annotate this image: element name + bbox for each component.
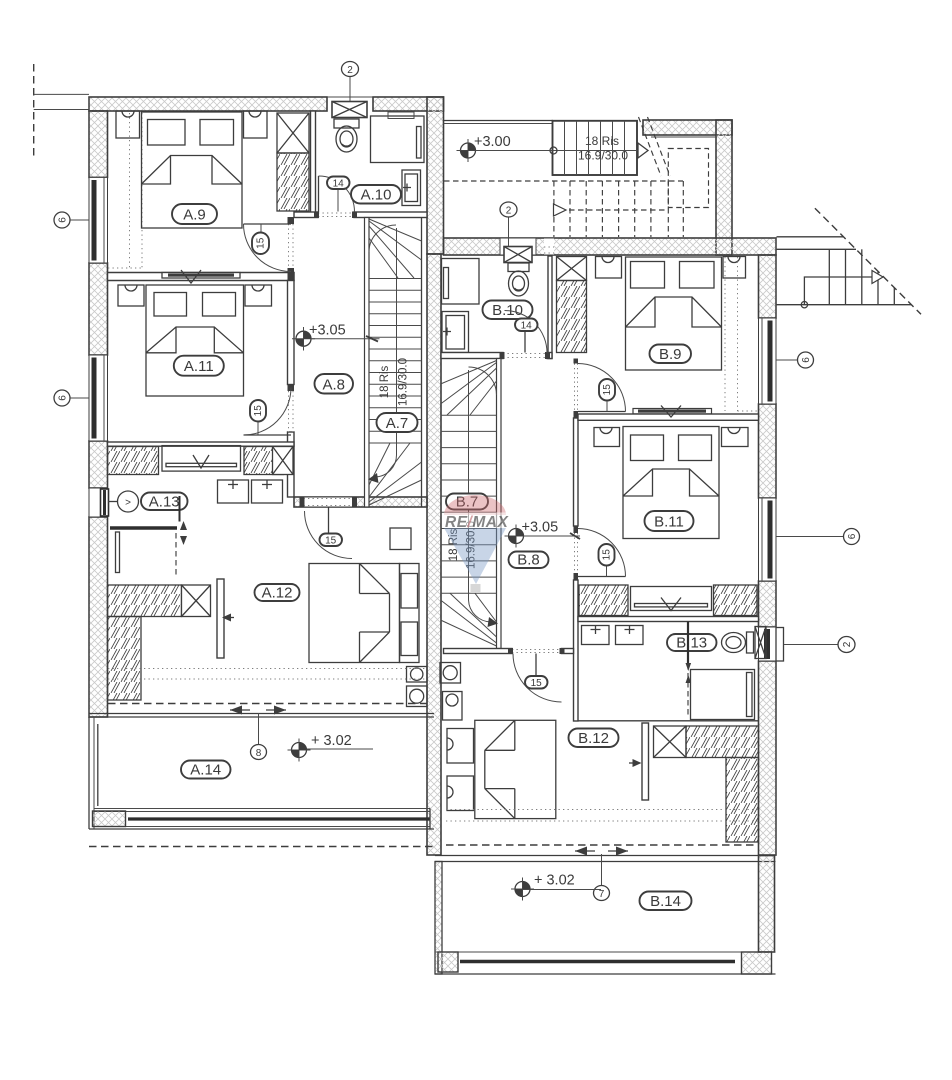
svg-text:+ 3.02: + 3.02: [534, 873, 575, 889]
svg-text:+3.00: +3.00: [474, 134, 511, 150]
svg-text:RE/MAX: RE/MAX: [445, 514, 509, 531]
svg-text:16.9/30.0: 16.9/30.0: [398, 358, 410, 406]
svg-text:A.14: A.14: [190, 762, 221, 779]
svg-text:18 Ris: 18 Ris: [585, 134, 619, 148]
svg-text:+ 3.02: + 3.02: [311, 733, 352, 749]
svg-text:15: 15: [602, 384, 613, 396]
svg-text:B.9: B.9: [659, 346, 682, 363]
svg-text:14: 14: [333, 178, 345, 189]
svg-text:>: >: [125, 498, 131, 509]
svg-text:B.12: B.12: [578, 730, 609, 747]
svg-text:A.9: A.9: [183, 206, 206, 223]
svg-text:16.9/30.0: 16.9/30.0: [578, 149, 628, 163]
svg-text:15: 15: [531, 678, 543, 689]
svg-text:15: 15: [325, 535, 337, 546]
svg-text:2: 2: [842, 641, 853, 647]
svg-text:2: 2: [506, 205, 512, 216]
svg-text:A.12: A.12: [262, 585, 293, 602]
svg-text:A.11: A.11: [184, 358, 214, 375]
svg-text:B.14: B.14: [650, 893, 681, 910]
svg-text:B.13: B.13: [676, 635, 707, 652]
svg-text:A.10: A.10: [361, 187, 392, 204]
svg-text:6: 6: [58, 217, 69, 223]
svg-text:+3.05: +3.05: [309, 323, 346, 339]
svg-text:15: 15: [256, 237, 267, 249]
svg-text:B.11: B.11: [654, 513, 684, 530]
svg-text:6: 6: [801, 357, 812, 363]
svg-text:18 Ris: 18 Ris: [379, 365, 391, 398]
svg-text:6: 6: [58, 395, 69, 401]
svg-text:15: 15: [253, 405, 264, 417]
svg-text:15: 15: [602, 549, 613, 561]
svg-text:A.8: A.8: [322, 376, 345, 393]
svg-text:8: 8: [256, 748, 262, 759]
svg-text:2: 2: [347, 65, 353, 76]
svg-text:14: 14: [521, 320, 533, 331]
svg-text:A.13: A.13: [149, 493, 180, 510]
svg-text:A.7: A.7: [386, 415, 409, 432]
svg-text:6: 6: [847, 533, 858, 539]
svg-text:7: 7: [599, 889, 605, 900]
svg-text:+3.05: +3.05: [522, 520, 559, 536]
svg-text:B.8: B.8: [517, 552, 540, 569]
